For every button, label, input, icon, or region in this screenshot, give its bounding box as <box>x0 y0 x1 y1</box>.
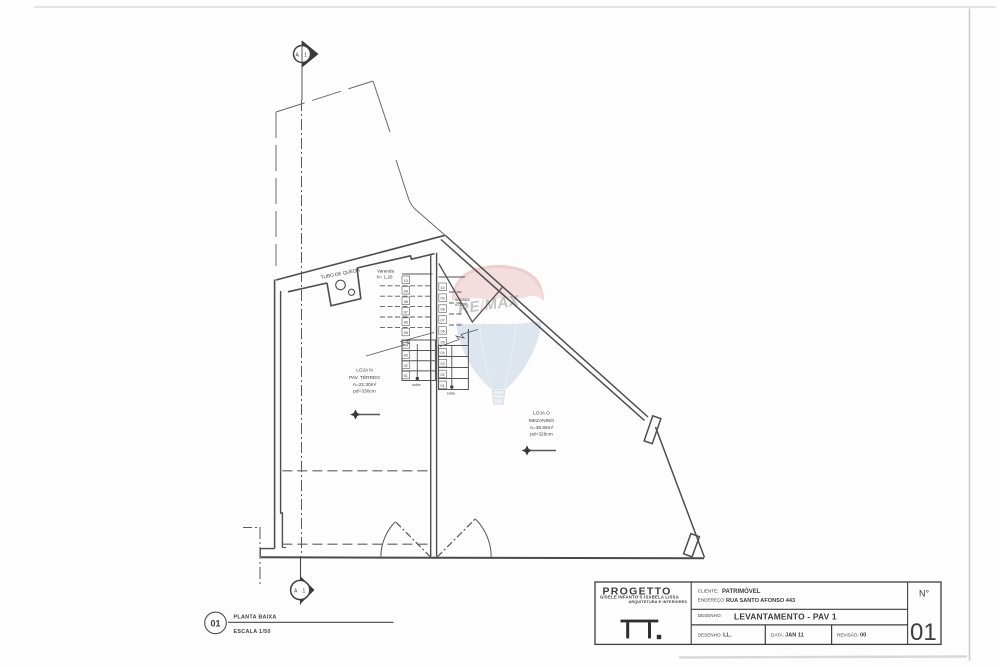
svg-text:MEZANINO: MEZANINO <box>529 418 555 424</box>
svg-text:05: 05 <box>404 331 408 335</box>
svg-text:01: 01 <box>910 619 937 646</box>
svg-text:10: 10 <box>404 279 408 283</box>
svg-text:ARQUITETURA E INTERIORES: ARQUITETURA E INTERIORES <box>629 600 688 604</box>
svg-text:GISELE INFANTO'S ISABELA LISSA: GISELE INFANTO'S ISABELA LISSA <box>600 595 679 600</box>
svg-text:10: 10 <box>441 286 445 290</box>
svg-text:07: 07 <box>404 310 408 314</box>
svg-text:05: 05 <box>441 340 445 344</box>
svg-text:pd=330cm: pd=330cm <box>353 388 376 394</box>
svg-text:A=22.30m²: A=22.30m² <box>353 382 377 388</box>
svg-text:06: 06 <box>441 329 445 333</box>
svg-text:02: 02 <box>404 364 408 368</box>
svg-text:1: 1 <box>304 53 307 59</box>
svg-text:PAV. TÉRREO: PAV. TÉRREO <box>349 374 380 381</box>
svg-text:RUA SANTO AFONSO 443: RUA SANTO AFONSO 443 <box>726 598 795 604</box>
svg-text:CLIENTE:: CLIENTE: <box>698 589 719 594</box>
svg-text:04: 04 <box>441 351 445 355</box>
svg-text:LEVANTAMENTO - PAV 1: LEVANTAMENTO - PAV 1 <box>734 612 837 622</box>
svg-text:08: 08 <box>441 308 445 312</box>
svg-text:09: 09 <box>404 289 408 293</box>
svg-text:PLANTA BAIXA: PLANTA BAIXA <box>234 615 277 621</box>
svg-text:LOJA O: LOJA O <box>533 411 550 417</box>
svg-text:06: 06 <box>404 321 408 325</box>
svg-text:sobe: sobe <box>412 383 420 387</box>
svg-text:PATRIMÓVEL: PATRIMÓVEL <box>722 587 761 595</box>
svg-text:Varanda: Varanda <box>377 269 394 274</box>
svg-text:09: 09 <box>441 297 445 301</box>
svg-text:N°: N° <box>919 589 929 599</box>
svg-text:ENDEREÇO:: ENDEREÇO: <box>698 598 725 603</box>
svg-text:SACADA: SACADA <box>455 298 470 302</box>
svg-text:02: 02 <box>441 373 445 377</box>
svg-text:LOJA N: LOJA N <box>356 368 373 374</box>
svg-text:DESENHO:: DESENHO: <box>698 613 722 618</box>
svg-text:03: 03 <box>404 354 408 358</box>
svg-text:h= 1.20: h= 1.20 <box>377 275 393 280</box>
svg-text:01: 01 <box>441 384 445 388</box>
svg-text:REVISÃO: 00: REVISÃO: 00 <box>837 632 866 639</box>
svg-text:A=38.65m²: A=38.65m² <box>530 425 554 431</box>
svg-text:h=1.10: h=1.10 <box>455 303 466 307</box>
svg-text:04: 04 <box>404 344 408 348</box>
svg-text:07: 07 <box>441 319 445 323</box>
svg-text:1: 1 <box>303 589 306 595</box>
svg-text:08: 08 <box>404 300 408 304</box>
svg-text:pd=326cm: pd=326cm <box>530 431 553 437</box>
svg-text:sobe: sobe <box>447 392 455 396</box>
svg-text:ESCALA 1/50: ESCALA 1/50 <box>234 629 271 635</box>
svg-text:01: 01 <box>210 619 220 629</box>
svg-text:01: 01 <box>404 374 408 378</box>
svg-text:03: 03 <box>441 362 445 366</box>
